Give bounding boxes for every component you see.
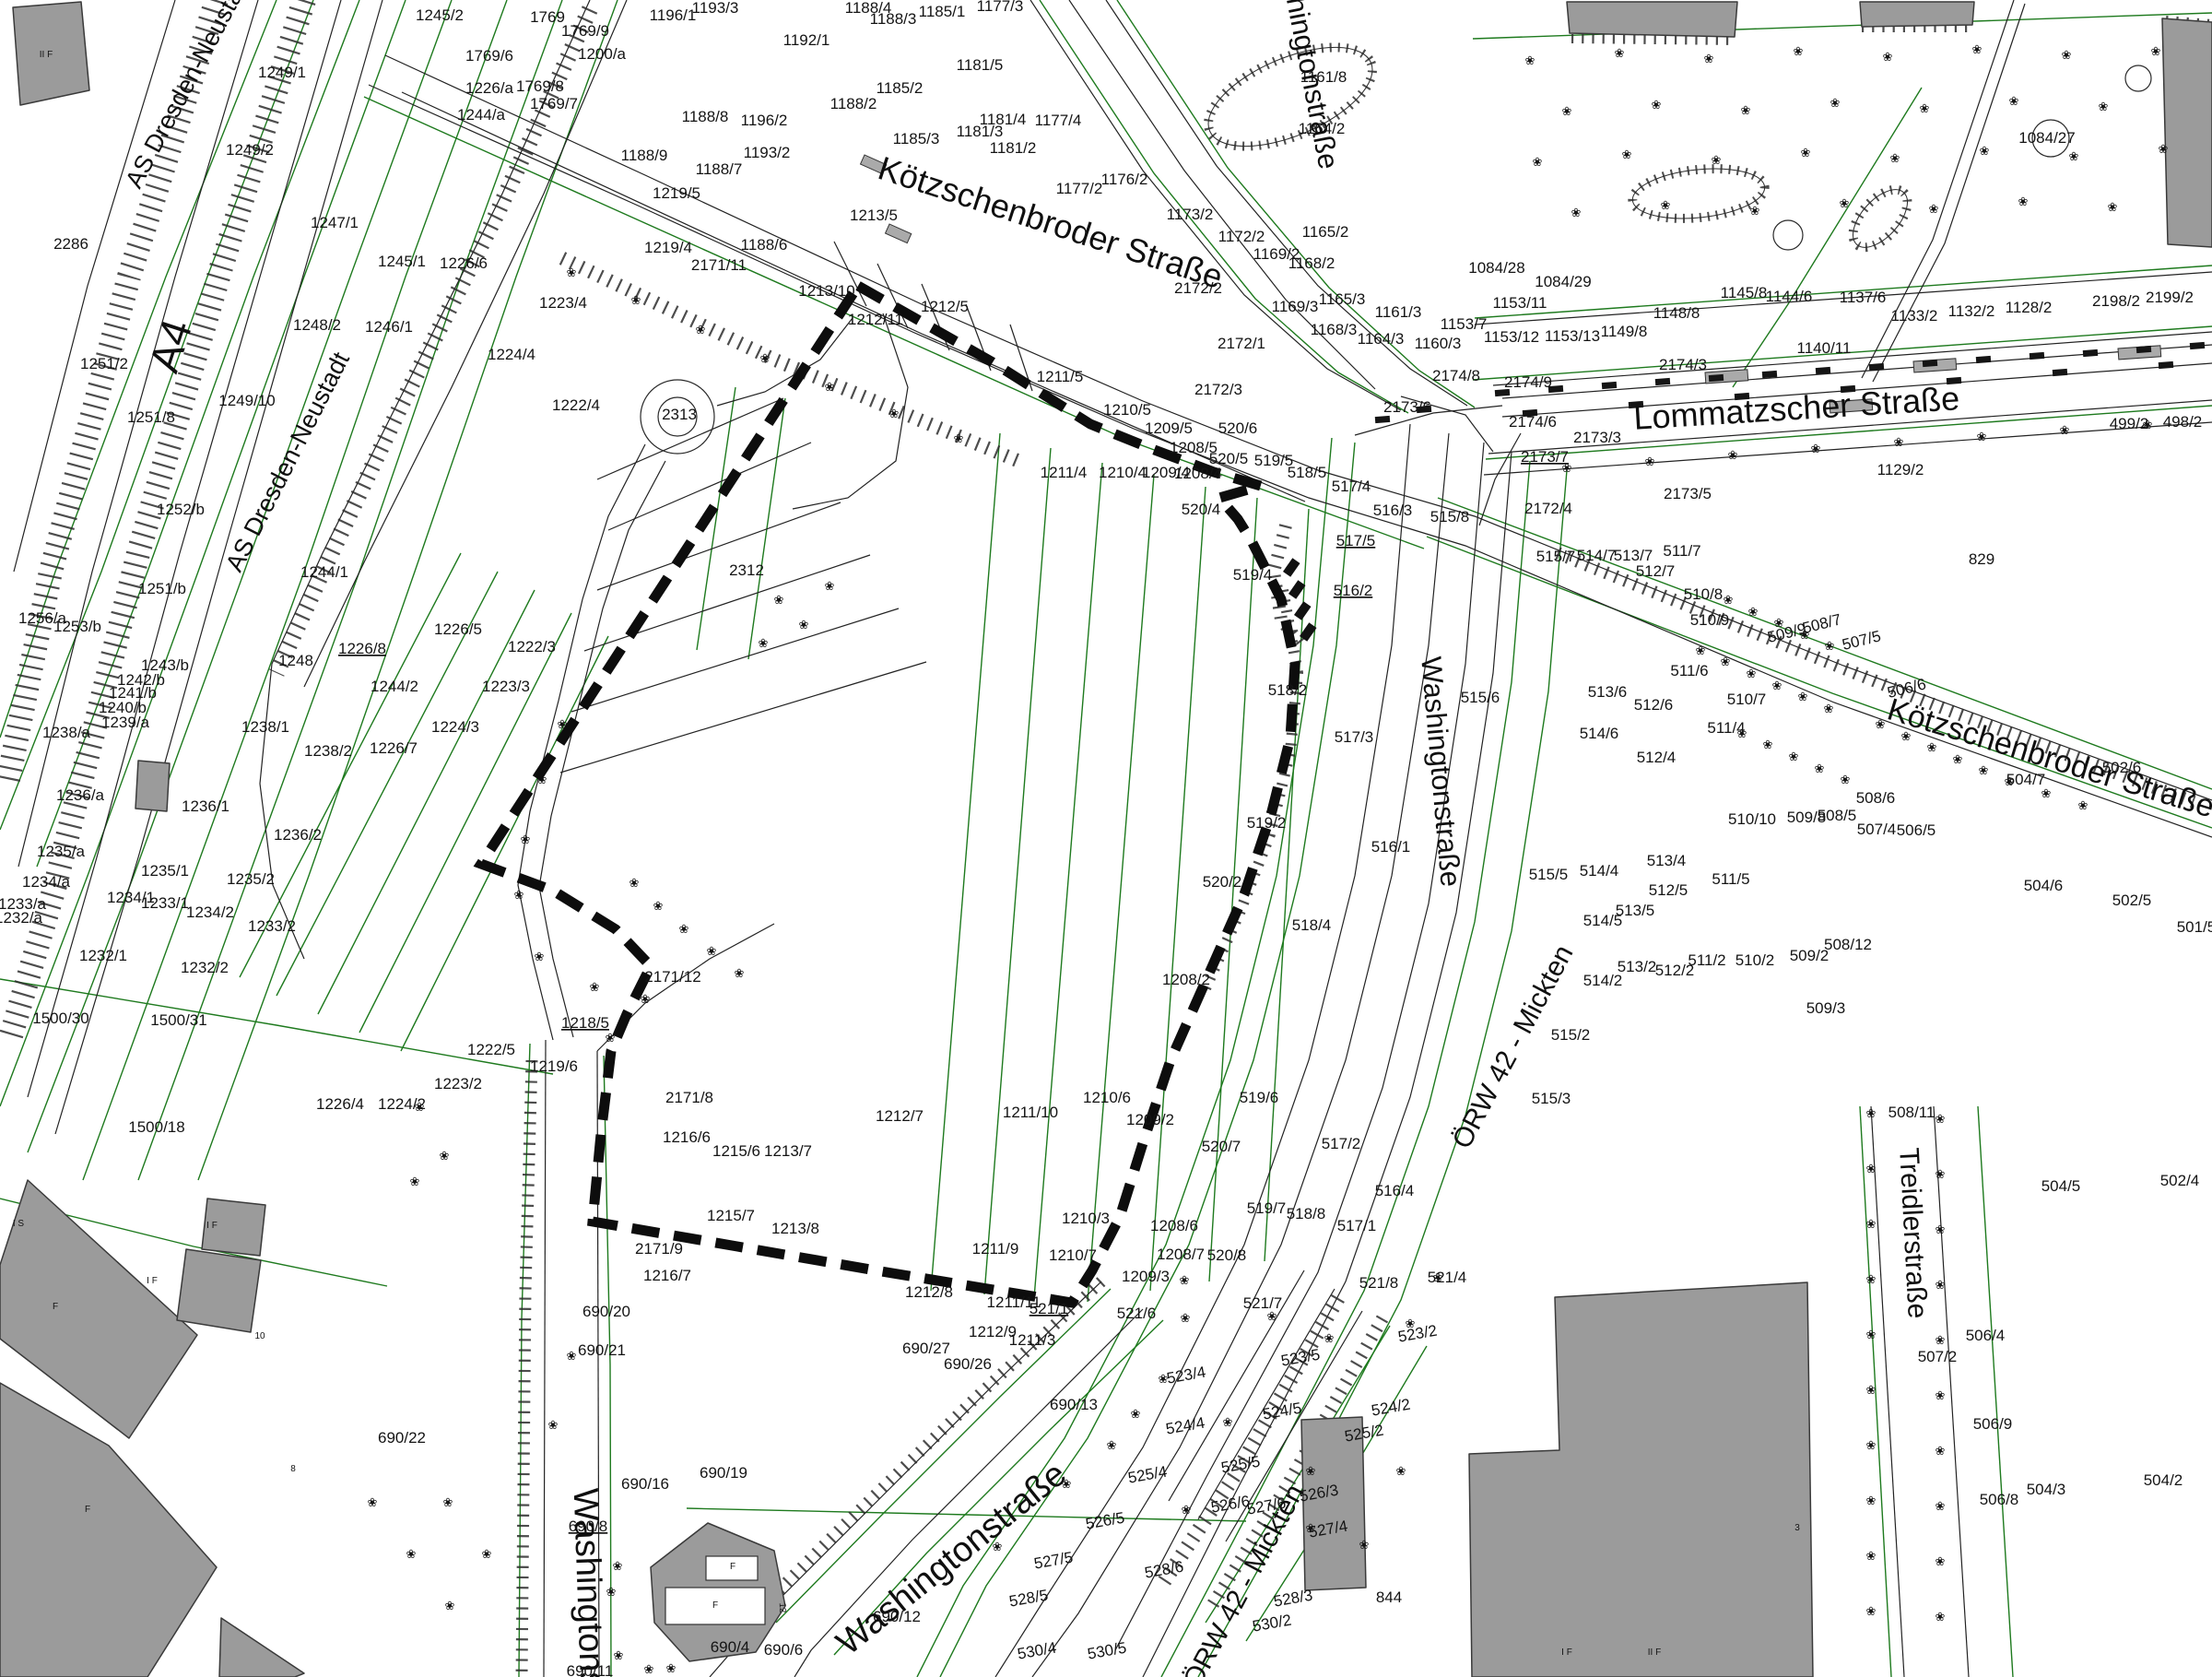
parcel-label: 514/4 — [1580, 862, 1619, 880]
parcel-label: 1251/2 — [80, 355, 128, 372]
green-parcel-line — [198, 0, 618, 1180]
parcel-label: 2198/2 — [2092, 292, 2140, 310]
green-parcel-line — [359, 613, 571, 1033]
parcel-label: 844 — [1376, 1588, 1402, 1606]
parcel-label: 523/5 — [1279, 1346, 1321, 1370]
parcel-label: 506/5 — [1897, 821, 1936, 839]
tree-icon: ❀ — [2069, 149, 2079, 163]
parcel-label: 508/5 — [1818, 807, 1857, 824]
tree-icon: ❀ — [1131, 1407, 1141, 1421]
parcel-label: 1769/7 — [530, 95, 578, 112]
parcel-label: 1238/1 — [241, 718, 289, 736]
parcel-label: 2173/7 — [1521, 448, 1569, 466]
tree-icon: ❀ — [1866, 1549, 1877, 1563]
building — [1860, 2, 1974, 27]
parcel-label: 1084/28 — [1468, 259, 1524, 277]
parcel-label: 530/4 — [1016, 1639, 1057, 1663]
tree-icon: ❀ — [666, 1661, 677, 1675]
building-annotation-label: II F — [40, 50, 53, 60]
parcel-label: 1226/8 — [338, 640, 386, 657]
parcel-label: 519/2 — [1247, 814, 1287, 832]
parcel-label: 528/6 — [1143, 1558, 1184, 1582]
tree-icon: ❀ — [590, 980, 600, 994]
parcel-label: 502/4 — [2160, 1172, 2200, 1189]
parcel-label: 511/5 — [1712, 870, 1749, 888]
parcel-label: 1161/3 — [1375, 303, 1422, 321]
tree-icon: ❀ — [1533, 155, 1543, 169]
road-line — [584, 555, 870, 651]
tree-icon: ❀ — [759, 636, 769, 650]
parcel-label: 1244/1 — [300, 563, 348, 581]
road-line — [1106, 0, 1467, 406]
parcel-label: 1209/2 — [1126, 1111, 1174, 1128]
parcel-label: 518/5 — [1288, 464, 1327, 481]
tree-icon: ❀ — [774, 593, 784, 607]
parcel-label: 1251/8 — [127, 408, 175, 426]
building-annotation-label: F — [730, 1562, 735, 1572]
parcel-label: 690/4 — [711, 1638, 750, 1656]
tree-icon: ❀ — [1866, 1604, 1877, 1618]
cadastral-map: ❀❀❀❀❀❀❀❀❀❀❀❀❀❀❀❀❀❀❀❀❀❀❀❀❀❀❀❀❀❀❀❀❀❀❀❀❀❀❀❀… — [0, 0, 2212, 1677]
parcel-label: 512/5 — [1649, 881, 1688, 899]
tree-icon: ❀ — [825, 380, 835, 394]
hatch-band — [1571, 39, 1735, 41]
parcel-label: 1212/11 — [848, 311, 903, 328]
parcel-label: 1153/7 — [1441, 315, 1488, 333]
tree-icon: ❀ — [548, 1418, 559, 1432]
parcel-label: 1244/2 — [371, 678, 418, 695]
parcel-label: 524/4 — [1164, 1414, 1206, 1438]
tree-icon: ❀ — [1359, 1538, 1370, 1552]
tree-icon: ❀ — [613, 1559, 623, 1573]
tree-icon: ❀ — [1866, 1383, 1877, 1397]
map-circle — [1773, 220, 1803, 250]
parcel-label: 1500/30 — [32, 1010, 88, 1027]
parcel-label: 1193/2 — [744, 144, 791, 161]
parcel-label: 1234/a — [22, 873, 71, 891]
tram-tie-icon — [2083, 349, 2099, 357]
tree-icon: ❀ — [445, 1599, 455, 1612]
tree-icon: ❀ — [1866, 1328, 1877, 1341]
parcel-label: 1145/8 — [1721, 284, 1768, 301]
tree-icon: ❀ — [1741, 103, 1751, 117]
tree-icon: ❀ — [1525, 53, 1535, 67]
tram-tie-icon — [2030, 352, 2045, 360]
parcel-label: 506/9 — [1973, 1415, 2013, 1433]
parcel-label: 2173/5 — [1664, 485, 1712, 502]
tree-icon: ❀ — [707, 944, 717, 958]
tree-icon: ❀ — [1883, 50, 1893, 64]
street-label: Treidlerstraße — [1893, 1147, 1933, 1319]
parcel-label: 1185/2 — [877, 79, 924, 97]
parcel-label: 1236/a — [56, 786, 105, 804]
green-parcel-line — [984, 448, 1051, 1294]
green-parcel-line — [240, 553, 461, 977]
tree-icon: ❀ — [1712, 153, 1722, 167]
parcel-label: 498/2 — [2163, 413, 2203, 431]
parcel-label: 517/1 — [1337, 1217, 1377, 1234]
parcel-label: 517/4 — [1332, 478, 1371, 495]
tree-icon: ❀ — [1929, 202, 1939, 216]
parcel-label: 1181/5 — [957, 56, 1004, 74]
tree-icon: ❀ — [2060, 423, 2070, 437]
parcel-label: 521/7 — [1243, 1294, 1283, 1312]
parcel-label: 521/6 — [1117, 1305, 1157, 1322]
parcel-label: 499/2 — [2110, 415, 2149, 432]
parcel-label: 2171/11 — [691, 256, 747, 274]
tree-icon: ❀ — [521, 833, 531, 846]
parcel-label: 1211/5 — [1037, 368, 1084, 385]
building — [2162, 18, 2212, 247]
tree-icon: ❀ — [1935, 1444, 1946, 1458]
parking-loop — [1630, 163, 1768, 225]
parcel-label: 504/2 — [2144, 1471, 2183, 1489]
parcel-label: 1219/6 — [530, 1057, 578, 1075]
tree-icon: ❀ — [1763, 738, 1773, 751]
parcel-label: 1251/b — [138, 580, 186, 597]
parcel-label: 509/2 — [1790, 947, 1830, 964]
building-annotation-label: 10 — [254, 1331, 265, 1341]
parcel-label: 2174/6 — [1509, 413, 1557, 431]
parcel-label: 1188/6 — [741, 236, 788, 254]
parcel-label: 515/3 — [1532, 1090, 1571, 1107]
parcel-label: 1232/2 — [181, 959, 229, 976]
tree-icon: ❀ — [696, 323, 706, 337]
tree-icon: ❀ — [1935, 1112, 1946, 1126]
tree-icon: ❀ — [1935, 1222, 1946, 1236]
tree-icon: ❀ — [1794, 44, 1804, 58]
parcel-label: 1165/3 — [1319, 290, 1366, 308]
parcel-label: 502/5 — [2112, 892, 2152, 909]
parcel-label: 520/7 — [1202, 1138, 1241, 1155]
parcel-label: 1239/a — [101, 714, 150, 731]
parcel-label: 2171/9 — [635, 1240, 683, 1258]
tree-icon: ❀ — [1652, 98, 1662, 112]
tree-icon: ❀ — [1979, 763, 1989, 777]
parcel-label: 1238/2 — [304, 742, 352, 760]
parcel-label: 508/6 — [1856, 789, 1896, 807]
building-annotation-label: II F — [1648, 1647, 1661, 1658]
tree-icon: ❀ — [1645, 455, 1655, 468]
parcel-label: 2286 — [53, 235, 88, 253]
parcel-label: 2313 — [662, 406, 697, 423]
parcel-label: 507/2 — [1918, 1348, 1958, 1365]
tree-icon: ❀ — [1181, 1311, 1191, 1325]
parcel-label: 2199/2 — [2146, 289, 2194, 306]
parcel-label: 1084/27 — [2018, 129, 2075, 147]
parcel-label: 514/6 — [1580, 725, 1619, 742]
parcel-label: 513/6 — [1588, 683, 1628, 701]
parcel-label: 690/6 — [764, 1641, 804, 1659]
parcel-label: 1144/6 — [1766, 288, 1813, 305]
parcel-label: 1212/5 — [921, 298, 969, 315]
tree-icon: ❀ — [1396, 1464, 1406, 1478]
parcel-label: 1248/2 — [293, 316, 341, 334]
parcel-label: 1176/2 — [1101, 171, 1148, 188]
tree-icon: ❀ — [514, 888, 524, 902]
tree-icon: ❀ — [482, 1547, 492, 1561]
tree-icon: ❀ — [443, 1495, 453, 1509]
parcel-label: 524/2 — [1370, 1396, 1411, 1420]
tree-icon: ❀ — [1801, 146, 1811, 159]
parcel-label: 1164/3 — [1358, 330, 1405, 348]
parcel-label: 1181/3 — [957, 123, 1004, 140]
parcel-label: 1769/8 — [516, 77, 564, 95]
parcel-label: 512/7 — [1636, 562, 1676, 580]
parcel-label: 1196/1 — [650, 6, 697, 24]
tree-icon: ❀ — [2062, 48, 2072, 62]
parcel-label: 1226/4 — [316, 1095, 364, 1113]
tree-icon: ❀ — [1866, 1162, 1877, 1175]
building — [135, 761, 170, 811]
parcel-label: 1216/7 — [643, 1267, 691, 1284]
tree-icon: ❀ — [1615, 46, 1625, 60]
parcel-label: 2174/3 — [1659, 356, 1707, 373]
tree-icon: ❀ — [1972, 42, 1983, 56]
parcel-label: 1236/2 — [274, 826, 322, 844]
parcel-label: 1185/3 — [893, 130, 940, 148]
tram-tie-icon — [2136, 346, 2152, 353]
tree-icon: ❀ — [1661, 198, 1671, 212]
parcel-label: 516/2 — [1334, 582, 1373, 599]
parcel-label: 518/8 — [1287, 1205, 1326, 1222]
building — [219, 1618, 304, 1677]
tree-icon: ❀ — [1866, 1217, 1877, 1231]
parcel-label: 690/16 — [621, 1475, 669, 1493]
tram-tie-icon — [1816, 367, 1831, 374]
tree-icon: ❀ — [1977, 430, 1987, 443]
parcel-label: 1209/3 — [1122, 1268, 1170, 1285]
tree-icon: ❀ — [1562, 104, 1572, 118]
tree-icon: ❀ — [825, 579, 835, 593]
tree-icon: ❀ — [629, 876, 640, 890]
parcel-label: 520/6 — [1218, 419, 1258, 437]
parcel-label: 1222/5 — [467, 1041, 515, 1058]
tree-icon: ❀ — [1920, 101, 1930, 115]
tree-icon: ❀ — [1704, 52, 1714, 65]
tree-icon: ❀ — [1571, 206, 1582, 219]
parcel-label: 519/6 — [1240, 1089, 1279, 1106]
parcel-label: 511/4 — [1707, 719, 1745, 737]
tree-icon: ❀ — [631, 293, 641, 307]
parcel-label: 1222/4 — [552, 396, 600, 414]
parcel-label: 1232/1 — [79, 947, 127, 964]
tree-icon: ❀ — [1772, 679, 1783, 692]
parcel-label: 1188/2 — [830, 95, 877, 112]
parcel-label: 1210/4 — [1099, 464, 1147, 481]
tree-icon: ❀ — [1935, 1554, 1946, 1568]
parcel-label: 1149/8 — [1601, 323, 1648, 340]
green-parcel-line — [931, 433, 1000, 1291]
parcel-label: 1500/31 — [150, 1011, 206, 1029]
parcel-label: 2312 — [729, 561, 764, 579]
tree-icon: ❀ — [1953, 752, 1963, 766]
parcel-label: 1246/1 — [365, 318, 413, 336]
parcel-label: 1133/2 — [1891, 307, 1938, 325]
building — [1567, 2, 1737, 37]
parcel-label: 506/8 — [1980, 1491, 2019, 1508]
parcel-label: 515/5 — [1529, 866, 1569, 883]
road-line — [571, 608, 899, 712]
parcel-label: 1216/6 — [663, 1128, 711, 1146]
green-parcel-line — [0, 0, 406, 1106]
parcel-label: 530/2 — [1251, 1612, 1292, 1636]
tree-icon: ❀ — [1223, 1415, 1233, 1429]
parcel-label: 1233/1 — [141, 894, 189, 912]
green-parcel-line — [1034, 463, 1102, 1298]
tree-icon: ❀ — [1724, 593, 1734, 607]
parcel-label: 690/13 — [1050, 1396, 1098, 1413]
road-line — [1115, 443, 1484, 1650]
tree-icon: ❀ — [1935, 1333, 1946, 1347]
parcel-label: 1226/a — [465, 79, 514, 97]
tree-icon: ❀ — [1890, 151, 1900, 165]
parcel-label: 520/4 — [1182, 501, 1221, 518]
tree-icon: ❀ — [2018, 195, 2029, 208]
parcel-label: 1226/7 — [370, 739, 418, 757]
parcel-label: 512/4 — [1637, 749, 1677, 766]
tram-tie-icon — [1976, 356, 1992, 363]
parcel-label: 690/19 — [700, 1464, 747, 1482]
tram-tie-icon — [1709, 374, 1724, 382]
building-annotation-label: F — [53, 1302, 58, 1312]
parcel-label: 690/22 — [378, 1429, 426, 1447]
tram-tie-icon — [2053, 369, 2068, 376]
road-line — [1032, 433, 1449, 1677]
tram-tie-icon — [1923, 360, 1938, 367]
parcel-label: 514/7 — [1577, 547, 1617, 564]
tram-tie-icon — [1869, 363, 1885, 371]
parcel-label: 1249/1 — [258, 64, 306, 81]
parcel-label: 1153/13 — [1545, 327, 1600, 345]
parcel-label: 508/7 — [1801, 610, 1843, 637]
parcel-label: 1169/3 — [1272, 298, 1319, 315]
green-parcel-line — [1150, 487, 1206, 1291]
parcel-label: 504/6 — [2024, 877, 2064, 894]
tree-icon: ❀ — [1182, 1503, 1192, 1517]
tree-icon: ❀ — [1789, 750, 1799, 763]
parcel-label: 1172/2 — [1218, 228, 1265, 245]
parcel-label: 1223/4 — [539, 294, 587, 312]
parcel-label: 513/2 — [1618, 958, 1657, 975]
parcel-label: 526/5 — [1084, 1509, 1125, 1533]
parcel-label: 1226/6 — [440, 254, 488, 272]
parcel-label: 510/7 — [1727, 691, 1767, 708]
parcel-label: 1192/1 — [783, 31, 830, 49]
parcel-label: 1211/10 — [1003, 1104, 1058, 1121]
parcel-label: 1208/4 — [1174, 465, 1222, 482]
tree-icon: ❀ — [1935, 1388, 1946, 1402]
tree-icon: ❀ — [1748, 605, 1759, 619]
parcel-label: 1177/2 — [1056, 180, 1103, 197]
parcel-label: 515/7 — [1536, 548, 1576, 565]
road-line — [260, 664, 304, 959]
tree-icon: ❀ — [1935, 1278, 1946, 1292]
road-line — [544, 1040, 546, 1677]
tree-icon: ❀ — [1825, 639, 1835, 653]
tree-icon: ❀ — [2159, 142, 2169, 156]
tree-icon: ❀ — [1696, 644, 1706, 657]
parcel-label: 1168/2 — [1288, 254, 1335, 272]
parcel-label: 1210/3 — [1062, 1210, 1110, 1227]
parcel-label: 1248 — [278, 652, 313, 669]
tree-icon: ❀ — [1747, 667, 1757, 680]
parcel-label: 1219/5 — [653, 184, 700, 202]
parcel-label: 1177/3 — [977, 0, 1024, 15]
tree-icon: ❀ — [799, 618, 809, 632]
tree-icon: ❀ — [1811, 442, 1821, 455]
parcel-label: 521/8 — [1359, 1274, 1399, 1292]
parcel-label: 517/3 — [1335, 728, 1374, 746]
street-label: Washingtonstraße — [566, 1487, 615, 1677]
tree-icon: ❀ — [1798, 690, 1808, 703]
tree-icon: ❀ — [1306, 1464, 1316, 1478]
tree-icon: ❀ — [2108, 200, 2118, 214]
parcel-label: 690/20 — [582, 1303, 630, 1320]
parcel-label: 526/6 — [1209, 1493, 1251, 1517]
parcel-label: 504/3 — [2027, 1481, 2066, 1498]
parcel-label: 1213/8 — [771, 1220, 819, 1237]
parcel-label: 690/26 — [944, 1355, 992, 1373]
parcel-label: 523/4 — [1165, 1364, 1206, 1388]
tree-icon: ❀ — [1750, 204, 1760, 218]
parcel-label: 690/21 — [578, 1341, 626, 1359]
parcel-label: 1235/2 — [227, 870, 275, 888]
parcel-label: 1188/8 — [682, 108, 729, 125]
tree-icon: ❀ — [1980, 144, 1990, 158]
parcel-label: 1223/2 — [434, 1075, 482, 1092]
parcel-label: 2172/4 — [1524, 500, 1572, 517]
green-parcel-line — [1978, 1106, 2013, 1677]
parcel-label: 2171/8 — [665, 1089, 713, 1106]
parcel-label: 1129/2 — [1877, 461, 1924, 478]
tree-icon: ❀ — [1815, 762, 1825, 775]
tree-icon: ❀ — [2041, 786, 2052, 800]
parcel-label: 1181/2 — [990, 139, 1037, 157]
parcel-label: 1148/8 — [1653, 304, 1700, 322]
parcel-label: 1245/1 — [378, 253, 426, 270]
parcel-label: 1196/2 — [741, 112, 788, 129]
tree-icon: ❀ — [1840, 196, 1850, 210]
parcel-label: 510/8 — [1684, 585, 1724, 603]
tree-icon: ❀ — [644, 1662, 654, 1676]
parcel-label: 1210/7 — [1049, 1246, 1097, 1264]
parcel-label: 1153/11 — [1493, 294, 1547, 312]
tram-tie-icon — [1655, 378, 1671, 385]
tree-icon: ❀ — [535, 950, 545, 963]
parcel-label: 1238/a — [42, 724, 91, 741]
parcel-label: 1128/2 — [2006, 299, 2053, 316]
parcel-label: 1211/4 — [1041, 464, 1088, 481]
street-label: Washingtonstraße — [1269, 0, 1345, 171]
parcel-label: 508/11 — [1888, 1104, 1935, 1121]
parcel-label: 517/5 — [1336, 532, 1376, 549]
parcel-label: 829 — [1969, 550, 1994, 568]
parcel-label: 1210/5 — [1103, 401, 1151, 419]
tree-icon: ❀ — [1866, 1494, 1877, 1507]
tram-tie-icon — [2190, 342, 2206, 349]
parcel-label: 1160/3 — [1415, 335, 1462, 352]
tram-tie-icon — [1602, 382, 1618, 389]
building-annotation-label: 12 — [777, 1602, 788, 1613]
building-annotation-label: I F — [147, 1276, 158, 1286]
road-line — [560, 662, 926, 773]
parcel-label: 510/2 — [1735, 951, 1775, 969]
parcel-label: 513/4 — [1647, 852, 1687, 869]
road-line — [1030, 0, 1401, 410]
parcel-label: 1235/1 — [141, 862, 189, 880]
parcel-label: 1215/6 — [712, 1142, 760, 1160]
